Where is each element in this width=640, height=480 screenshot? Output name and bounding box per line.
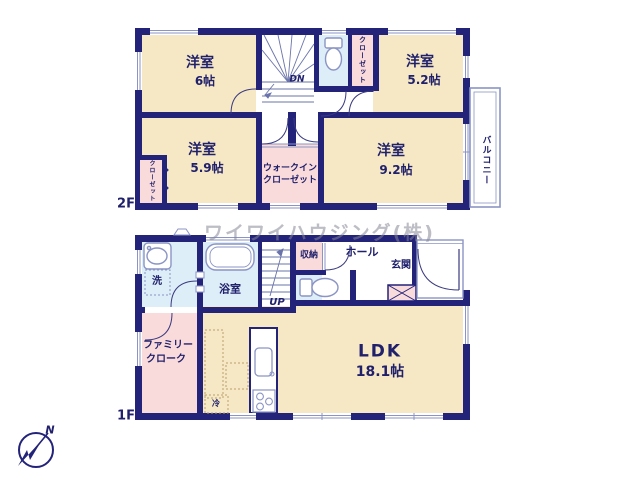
storage-label: 収納 — [300, 252, 318, 261]
closet-top-label: クローゼット — [359, 36, 366, 84]
room92-name: 洋室 — [377, 144, 405, 158]
compass-icon — [18, 433, 53, 467]
room6-name: 洋室 — [186, 56, 214, 70]
floor-plan-canvas: 2F 1F 洋室 6帖 洋室 5.2帖 洋室 5.9帖 洋室 9.2帖 ウォーク… — [0, 0, 640, 480]
room6-size: 6帖 — [195, 75, 215, 87]
washroom-label: 洗 — [152, 277, 162, 287]
ldk-fill — [203, 306, 463, 413]
vent-icon — [174, 229, 190, 235]
fridge-label: 冷 — [212, 400, 220, 408]
vanity-sink-icon — [144, 243, 171, 269]
shoe-cabinet-box — [388, 285, 416, 301]
floor1-label: 1F — [117, 410, 135, 423]
family-closet-line2: クローク — [146, 355, 186, 365]
toilet-1f-icon — [300, 279, 338, 297]
kitchen-counter — [250, 328, 277, 413]
stairs-up-label: UP — [269, 298, 284, 308]
room52-name: 洋室 — [406, 55, 434, 69]
wic-label-line1: ウォークイン — [263, 165, 317, 174]
kitchen-sink-icon — [255, 348, 272, 376]
bathtub-icon — [206, 244, 254, 270]
room52-size: 5.2帖 — [407, 74, 440, 86]
entrance-porch — [417, 240, 463, 298]
room92-size: 9.2帖 — [379, 164, 412, 176]
watermark-text: ワイワイハウジング(株) — [204, 224, 464, 243]
family-closet-line1: ファミリー — [143, 341, 193, 351]
hall-label: ホール — [346, 247, 379, 258]
closet-left-label: クローゼット — [148, 160, 154, 202]
floor2-wic-room — [262, 144, 318, 203]
compass-north-label: N — [45, 425, 54, 436]
bath-label: 浴室 — [219, 284, 241, 295]
balcony-label: バルコニー — [481, 135, 490, 185]
toilet-2f-icon — [325, 38, 342, 70]
ldk-name: LDK — [358, 344, 402, 361]
wic-label-line2: クローゼット — [263, 177, 317, 186]
entrance-label: 玄関 — [391, 261, 411, 271]
floor2-label: 2F — [117, 198, 135, 211]
room59-size: 5.9帖 — [190, 162, 223, 174]
ldk-size: 18.1帖 — [356, 365, 405, 379]
stove-icon — [253, 390, 275, 412]
room59-name: 洋室 — [188, 143, 216, 157]
stairs-dn-label: DN — [289, 76, 304, 85]
